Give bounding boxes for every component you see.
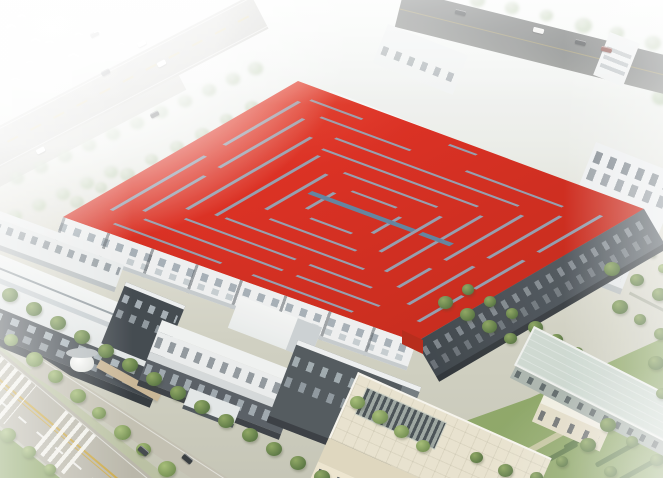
bird-wing	[59, 16, 64, 19]
bird-wing	[15, 77, 21, 81]
bird-wing	[29, 60, 33, 63]
bird-wing	[78, 32, 83, 35]
bird	[118, 41, 125, 45]
bird	[30, 36, 42, 43]
bird-wing	[121, 43, 125, 45]
bird-wing	[21, 14, 26, 17]
bird	[6, 22, 18, 29]
bird-wing	[97, 30, 101, 33]
bird	[17, 13, 27, 19]
bird-wing	[11, 24, 17, 28]
bird-wing	[73, 53, 80, 57]
bird	[94, 29, 102, 34]
bird	[55, 15, 65, 21]
flying-birds	[0, 0, 663, 478]
bird	[74, 31, 84, 37]
bird	[67, 51, 80, 59]
bird-wing	[35, 38, 41, 42]
aerial-campus-rendering	[0, 0, 663, 478]
bird	[11, 75, 22, 81]
bird	[26, 59, 34, 64]
bird-wing	[49, 40, 55, 44]
bird	[45, 38, 56, 44]
